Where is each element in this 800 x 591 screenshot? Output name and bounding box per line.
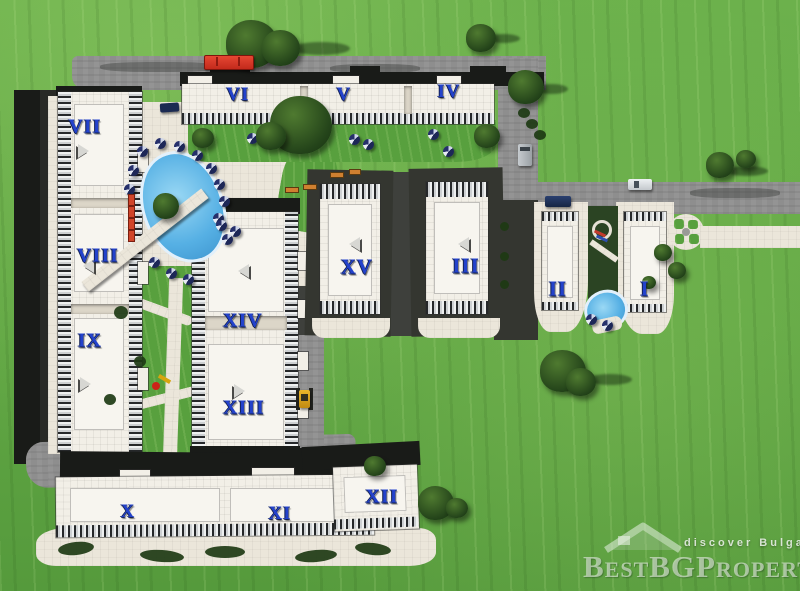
- building-label-iv: IV: [437, 81, 460, 103]
- navy-car-2: [160, 102, 180, 112]
- pool-umbrella: [183, 274, 194, 285]
- bush: [104, 394, 116, 405]
- roof-umbrella: [216, 220, 227, 231]
- roundabout-green: [675, 234, 684, 244]
- building-label-vi: VI: [226, 84, 249, 106]
- balcony-row: [624, 212, 666, 221]
- balcony-row: [426, 182, 488, 197]
- tree: [153, 193, 179, 219]
- roundabout-green: [674, 219, 684, 229]
- balcony-row: [542, 212, 578, 221]
- pool-umbrella: [192, 150, 203, 161]
- bench: [349, 169, 361, 175]
- tree: [508, 70, 544, 104]
- roof-section: [70, 488, 220, 522]
- section-divider: [71, 198, 129, 208]
- plaza-umbrella: [363, 139, 374, 150]
- building-label-xi: XI: [268, 503, 291, 525]
- tree-shadow: [292, 42, 350, 55]
- building-label-vii: VII: [68, 116, 101, 139]
- pool-umbrella: [174, 141, 185, 152]
- sun-lounger: [128, 206, 135, 218]
- tree: [192, 128, 214, 148]
- playground-ball: [152, 382, 160, 390]
- plaza-umbrella: [349, 134, 360, 145]
- bush: [500, 280, 509, 289]
- section-divider: [404, 86, 412, 114]
- balcony-row: [624, 304, 666, 312]
- roof-marker-vii: [78, 144, 89, 158]
- balcony-row: [320, 301, 380, 314]
- road-patch: [100, 62, 220, 72]
- building-label-xii: XII: [365, 486, 398, 509]
- pool-umbrella: [128, 165, 139, 176]
- building-label-i: I: [640, 277, 649, 302]
- stair-tower: [298, 352, 308, 370]
- tree: [466, 24, 496, 52]
- stair-tower: [138, 368, 148, 390]
- roof-section: [208, 344, 284, 440]
- roof-marker-ix: [80, 377, 91, 391]
- shadow-notch: [470, 66, 506, 82]
- red-truck-cab-line: [216, 57, 218, 66]
- red-truck-cab-line: [238, 57, 240, 66]
- building-label-viii: VIII: [77, 245, 119, 268]
- bush: [500, 222, 509, 231]
- tree: [474, 124, 500, 148]
- tree: [566, 368, 596, 396]
- sun-lounger: [128, 194, 135, 206]
- balcony-row: [182, 113, 494, 124]
- roundabout-green: [688, 220, 698, 229]
- building-label-x: X: [121, 501, 136, 523]
- bench: [303, 184, 317, 190]
- pool-umbrella: [586, 314, 597, 325]
- tree: [364, 456, 386, 476]
- building-label-xv: XV: [341, 255, 373, 280]
- white-car: [628, 179, 652, 190]
- apron-building-iii: [418, 318, 500, 338]
- roof-umbrella: [222, 234, 233, 245]
- white-car-windshield: [634, 181, 639, 188]
- building-label-xiii: XIII: [223, 397, 265, 420]
- pool-umbrella: [219, 196, 230, 207]
- brand-name: BestBGProperties: [583, 549, 800, 585]
- roof-marker-xv: [349, 237, 360, 251]
- bush: [205, 546, 245, 558]
- sidewalk-right-band: [700, 226, 800, 248]
- tree: [256, 122, 286, 150]
- tree: [736, 150, 756, 168]
- balcony-row: [542, 302, 578, 310]
- navy-car: [545, 196, 571, 207]
- bush: [526, 119, 538, 129]
- tree: [706, 152, 734, 178]
- building-label-v: V: [337, 84, 352, 106]
- stair-tower: [138, 262, 148, 284]
- building-label-xiv: XIV: [223, 310, 263, 333]
- roof-marker-xiv: [238, 264, 249, 278]
- pool-umbrella: [214, 179, 225, 190]
- balcony-row: [426, 301, 488, 314]
- tree: [262, 30, 300, 66]
- tree: [654, 244, 672, 261]
- balcony-row: [285, 212, 298, 450]
- sun-lounger: [128, 230, 135, 242]
- roundabout-green: [689, 234, 699, 244]
- roundabout-center: [682, 228, 690, 236]
- roof-marker-iii: [458, 237, 469, 251]
- apron-building-xv: [312, 318, 390, 338]
- site-plan-rendering: I II III IV V VI VII VIII IX X XI XII XI…: [0, 0, 800, 591]
- tree: [446, 498, 468, 518]
- pool-umbrella: [137, 146, 148, 157]
- sun-lounger: [128, 218, 135, 230]
- red-truck: [204, 55, 254, 70]
- bush: [500, 252, 509, 261]
- building-label-iii: III: [452, 254, 480, 279]
- pool-umbrella: [155, 138, 166, 149]
- bench: [330, 172, 344, 178]
- pool-umbrella: [166, 268, 177, 279]
- brand-tagline: discover Bulgaria: [684, 537, 800, 549]
- building-label-ix: IX: [78, 330, 102, 353]
- bush: [134, 356, 146, 367]
- pool-umbrella: [206, 163, 217, 174]
- building-label-ii: II: [549, 277, 567, 302]
- bush: [534, 130, 546, 140]
- roof-section: [434, 202, 480, 294]
- pool-umbrella: [602, 320, 613, 331]
- balcony-row: [320, 184, 380, 199]
- bush: [114, 306, 128, 319]
- road-patch: [690, 188, 780, 198]
- tree: [668, 262, 686, 279]
- bush: [518, 108, 530, 118]
- bench: [285, 187, 299, 193]
- pool-umbrella: [149, 257, 160, 268]
- plaza-umbrella: [443, 146, 454, 157]
- yellow-loader-cab: [301, 394, 308, 401]
- balcony-row: [58, 92, 71, 452]
- plaza-umbrella: [428, 129, 439, 140]
- silver-van-windshield: [520, 147, 530, 151]
